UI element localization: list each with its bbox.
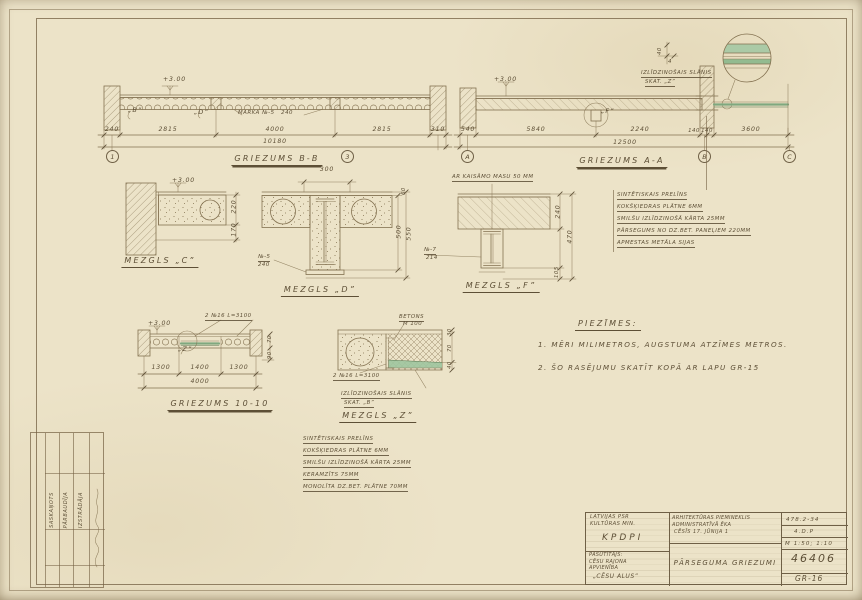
callout-note-line2: SKAT. „B” <box>344 400 374 408</box>
dim-label: 2240 <box>631 126 650 133</box>
elevation-mark-label: +3.00 <box>148 320 171 327</box>
callout-note-line2: SKAT. „Z” <box>645 79 675 87</box>
layer-note: SINTĒTISKAIS PRELĪNS <box>617 192 687 200</box>
dim-label: 220 <box>231 199 238 213</box>
detail-ref-z-label: „Z” <box>178 346 192 353</box>
signature-scribble <box>89 483 105 575</box>
dim-label: 105 <box>554 266 560 278</box>
axis-bubble-c: C <box>783 150 796 163</box>
dim-label: 140 <box>701 128 713 134</box>
dim-label: 4000 <box>266 126 285 133</box>
section-a-a-drawing <box>450 32 848 168</box>
node-z-title: MEZGLS „Z” <box>339 411 416 423</box>
dim-label: 1300 <box>230 364 249 371</box>
dim-label: 2815 <box>373 126 392 133</box>
floor-layer-note: KERAMZĪTS 75MM <box>303 472 359 480</box>
client-name: „CĒSU ALUS” <box>593 574 638 581</box>
drawing-scale: M 1:50; 1:10 <box>785 541 833 547</box>
note-line-2: 2. ŠO RASĒJUMU SKATĪT KOPĀ AR LAPU GR-15 <box>538 364 760 372</box>
notes-heading: PIEZĪMES: <box>575 319 641 331</box>
callout-dim-label: 40 <box>657 47 663 55</box>
notes-bracket-line <box>613 190 614 252</box>
callout-note-line1: IZLĪDZINOŠAIS SLĀNIS <box>641 70 712 78</box>
elevation-mark-label: +3.00 <box>163 76 186 83</box>
channel-note: 2 №16 L=3100 <box>333 373 380 381</box>
floor-layer-note: MONOLĪTA DZ.BET. PLĀTNE 70MM <box>303 484 408 492</box>
margin-table-divider <box>45 473 105 474</box>
dim-label: 2815 <box>159 126 178 133</box>
dim-label: 240 <box>105 126 119 133</box>
floor-layer-note: KOKŠĶIEDRAS PLĀTNE 6MM <box>303 448 389 456</box>
concrete-note: M 100 <box>403 321 422 327</box>
axis-bubble-a: A <box>461 150 474 163</box>
margin-table-divider <box>45 433 46 587</box>
dim-label: 60 <box>401 187 407 195</box>
dim-label: 300 <box>320 166 334 173</box>
detail-ref-d-label: „D” <box>194 109 209 116</box>
dim-label: 5840 <box>527 126 546 133</box>
org-name: KULTŪRAS MIN. <box>590 522 635 528</box>
title-block-divider <box>781 537 848 538</box>
section-a-a-title: GRIEZUMS A-A <box>576 156 667 168</box>
drawing-sheet: +3.00 „B” „D” MARKA №-5 240 240 2815 400… <box>0 0 862 600</box>
topping-note: AR KAISĀMO MASU 50 MM <box>452 174 533 182</box>
dim-label: 90 <box>267 351 273 359</box>
beam-mark-note: №-5 <box>258 254 270 262</box>
elevation-mark-label: +3.00 <box>494 76 517 83</box>
dim-label: 3600 <box>742 126 761 133</box>
detail-ref-b-label: „B” <box>128 107 142 114</box>
axis-bubble-1: 1 <box>106 150 119 163</box>
total-dim-label: 4000 <box>191 378 210 385</box>
drawing-number: 46406 <box>791 553 836 566</box>
beam-mark-note: 214 <box>426 255 438 261</box>
beam-mark-note: MARKA №-5 240 <box>238 110 293 116</box>
dim-label: 40 <box>447 361 453 369</box>
total-dim-label: 10180 <box>263 138 287 145</box>
elevation-mark-label: +3.00 <box>172 177 195 184</box>
layer-note: PĀRSEGUMS NO DZ.BET. PANEĻIEM 220MM <box>617 228 751 236</box>
dim-label: 310 <box>431 126 445 133</box>
dim-label: 30 <box>447 328 453 336</box>
title-block-divider <box>669 543 781 544</box>
margin-table-divider <box>59 433 60 587</box>
margin-signature-table: IZSTRĀDĀJA PĀRBAUDĪJA SASKAŅOTS <box>30 432 104 588</box>
dim-label: 240 <box>555 204 562 218</box>
layer-note: SMILŠU IZLĪDZINOŠĀ KĀRTA 25MM <box>617 216 725 224</box>
dim-label: 470 <box>567 229 574 243</box>
axis-bubble-label: 1 <box>110 153 114 161</box>
dim-label: 70 <box>267 335 273 343</box>
channel-note: 2 №16 L=3100 <box>205 313 252 321</box>
callout-dim-label: 4 <box>668 59 672 65</box>
axis-bubble-label: 3 <box>345 153 349 161</box>
layer-note: KOKŠĶIEDRAS PLĀTNE 6MM <box>617 204 703 212</box>
note-line-1: 1. MĒRI MILIMETROS, AUGSTUMA ATZĪMES MET… <box>538 341 788 349</box>
dim-label: 500 <box>396 224 403 238</box>
dim-label: 1400 <box>191 364 210 371</box>
node-d-title: MEZGLS „D” <box>281 285 359 297</box>
sheet-number: GR-16 <box>795 575 823 584</box>
floor-layer-note: SMILŠU IZLĪDZINOŠĀ KĀRTA 25MM <box>303 460 411 468</box>
dim-label: 170 <box>231 222 238 236</box>
beam-mark-note: №-7 <box>424 247 436 255</box>
axis-bubble-3: 3 <box>341 150 354 163</box>
dim-label: 1300 <box>152 364 171 371</box>
node-c-title: MEZGLS „C” <box>121 256 198 268</box>
floor-layer-note: SINTĒTISKAIS PRELĪNS <box>303 436 373 444</box>
title-block-divider <box>781 549 848 550</box>
axis-bubble-label: C <box>787 153 792 161</box>
drawing-title: PĀRSEGUMA GRIEZUMI <box>669 559 781 567</box>
axis-bubble-b: B <box>698 150 711 163</box>
signature-role-label: PĀRBAUDĪJA <box>63 480 69 540</box>
title-block-divider <box>669 513 670 586</box>
dim-label: 140 <box>688 128 700 134</box>
object-name: ARHITEKTŪRAS PIEMINEKLIS <box>672 516 750 522</box>
axis-bubble-label: A <box>465 153 469 161</box>
client-name: APVIENĪBA <box>589 566 618 572</box>
signature-role-label: IZSTRĀDĀJA <box>78 480 84 540</box>
signature-role-label: SASKAŅOTS <box>49 480 55 540</box>
section-10-10-title: GRIEZUMS 10-10 <box>167 399 272 411</box>
total-dim-label: 12500 <box>613 139 637 146</box>
detail-ref-f-label: „F” <box>601 108 615 115</box>
layer-note: APMESTAS METĀLA SIJAS <box>617 240 695 248</box>
object-address: CĒSĪS 17. JŪNIJA 1 <box>674 530 729 536</box>
dim-label: 550 <box>406 226 413 240</box>
beam-mark-note: 240 <box>258 262 270 268</box>
node-f-title: MEZGLS „F” <box>463 281 540 293</box>
org-abbreviation: KPDPI <box>602 533 643 543</box>
title-block-divider <box>781 525 848 526</box>
object-name: ADMINISTRATĪVĀ ĒKA <box>672 523 731 529</box>
margin-table-divider <box>73 433 74 587</box>
project-stage: 4.D.P <box>794 529 814 535</box>
section-b-b-title: GRIEZUMS B-B <box>231 154 322 166</box>
project-code: 478.2-34 <box>786 517 820 523</box>
dim-label: 540 <box>461 126 475 133</box>
client-label: PASŪTĪTĀJS: <box>589 553 623 559</box>
title-block: LATVIJAS PSR KULTŪRAS MIN. KPDPI PASŪTĪT… <box>585 512 847 585</box>
callout-note-line1: IZLĪDZINOŠAIS SLĀNIS <box>341 391 412 399</box>
axis-bubble-label: B <box>702 153 706 161</box>
dim-label: 70 <box>447 344 453 352</box>
